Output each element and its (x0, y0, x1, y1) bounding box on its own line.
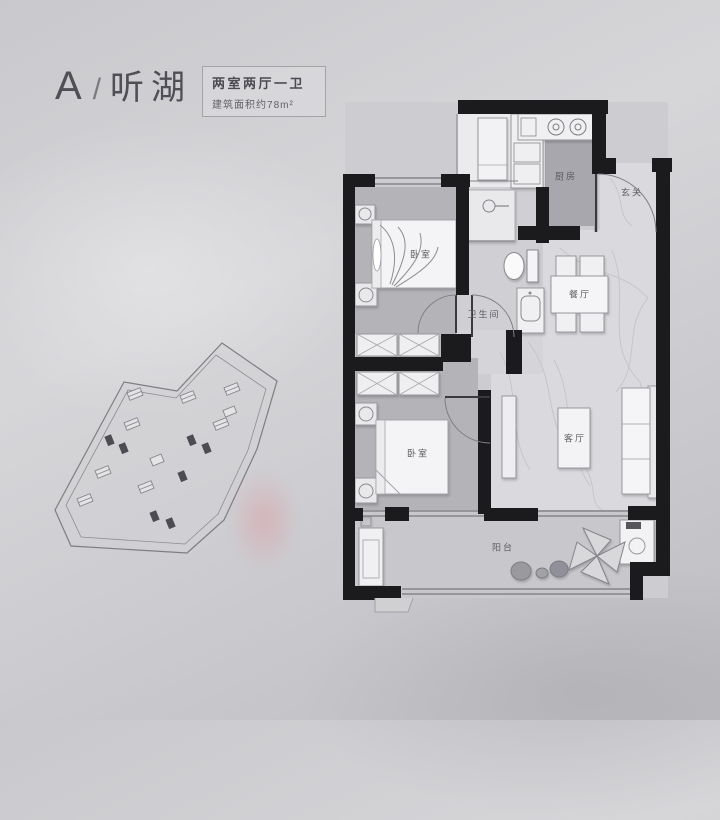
wall-bed1-bath (456, 187, 469, 295)
kitchen-label: 厨房 (555, 170, 577, 183)
toilet-icon (504, 253, 524, 280)
sofa (622, 388, 650, 494)
floor-plan-canvas (0, 0, 720, 720)
wall-bed1-cap-left (343, 174, 375, 187)
rock-icon (511, 562, 531, 580)
wall-left (343, 174, 355, 590)
chair (556, 312, 576, 332)
balcony-label: 阳台 (492, 541, 514, 554)
rock-icon (550, 561, 568, 577)
wall-entry-stub (592, 158, 616, 174)
wall-balcony-top-right (628, 506, 670, 520)
faucet-block (626, 522, 641, 529)
pillow (373, 239, 381, 271)
tv-stand (502, 396, 516, 478)
exterior-step (375, 598, 413, 612)
living-label: 客厅 (564, 432, 586, 445)
wall-balcony-top-mid (484, 508, 538, 521)
floorplan-page: { "header": { "plan_letter": "A", "separ… (0, 0, 720, 720)
nightstand (355, 478, 377, 503)
entry-label: 玄关 (621, 186, 643, 199)
wall-bed2-right (478, 390, 491, 514)
wall-kitchen-bottom (518, 226, 580, 240)
headboard (376, 420, 385, 494)
wall-bed2-south (385, 507, 409, 521)
wall-corner-a (441, 334, 471, 362)
wall-notch-v (630, 576, 643, 600)
nightstand (355, 403, 377, 425)
wall-balcony-top-left (343, 508, 363, 521)
wall-top (458, 100, 608, 114)
dining-label: 餐厅 (569, 288, 591, 301)
chair (580, 312, 604, 332)
toilet-tank (527, 250, 538, 282)
wall-kitchen-right (592, 112, 606, 162)
shower-area (462, 190, 515, 241)
wall-bed1-cap-right (441, 174, 470, 187)
chair (556, 256, 576, 276)
wall-entry-cap (652, 158, 672, 172)
rock-icon (536, 568, 548, 578)
bedroom2-label: 卧室 (407, 447, 429, 460)
bedroom1-label: 卧室 (410, 248, 432, 261)
chair (580, 256, 604, 276)
site-plan (55, 343, 277, 553)
site-boundary-outer (55, 343, 277, 553)
wall-wardrobe-divider (350, 357, 443, 371)
faucet-dot (529, 292, 532, 295)
refrigerator (478, 118, 507, 180)
wall-notch-h (630, 562, 670, 576)
bathroom-label: 卫生间 (467, 308, 500, 321)
wall-balcony-corner (343, 586, 401, 600)
